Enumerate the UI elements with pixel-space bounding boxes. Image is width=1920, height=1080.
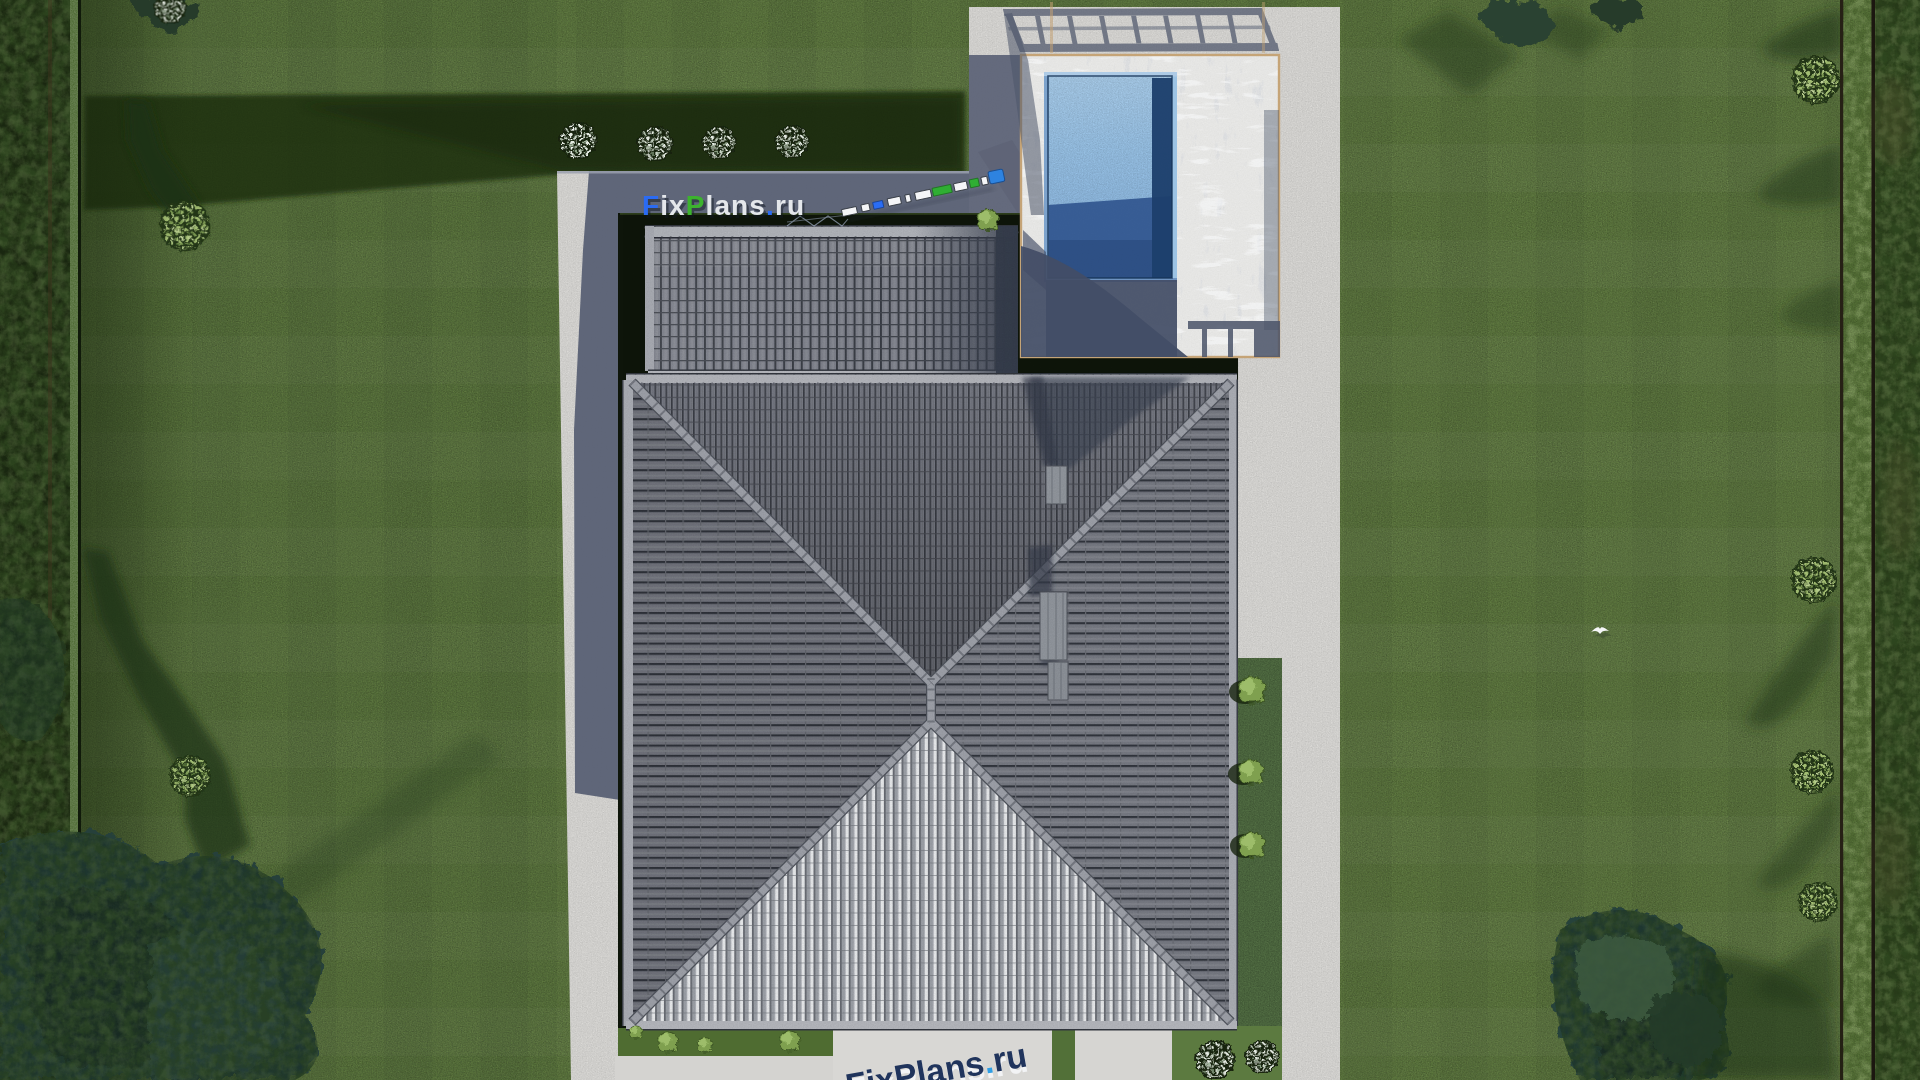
svg-text:FixPlans.ru: FixPlans.ru [642,190,805,221]
